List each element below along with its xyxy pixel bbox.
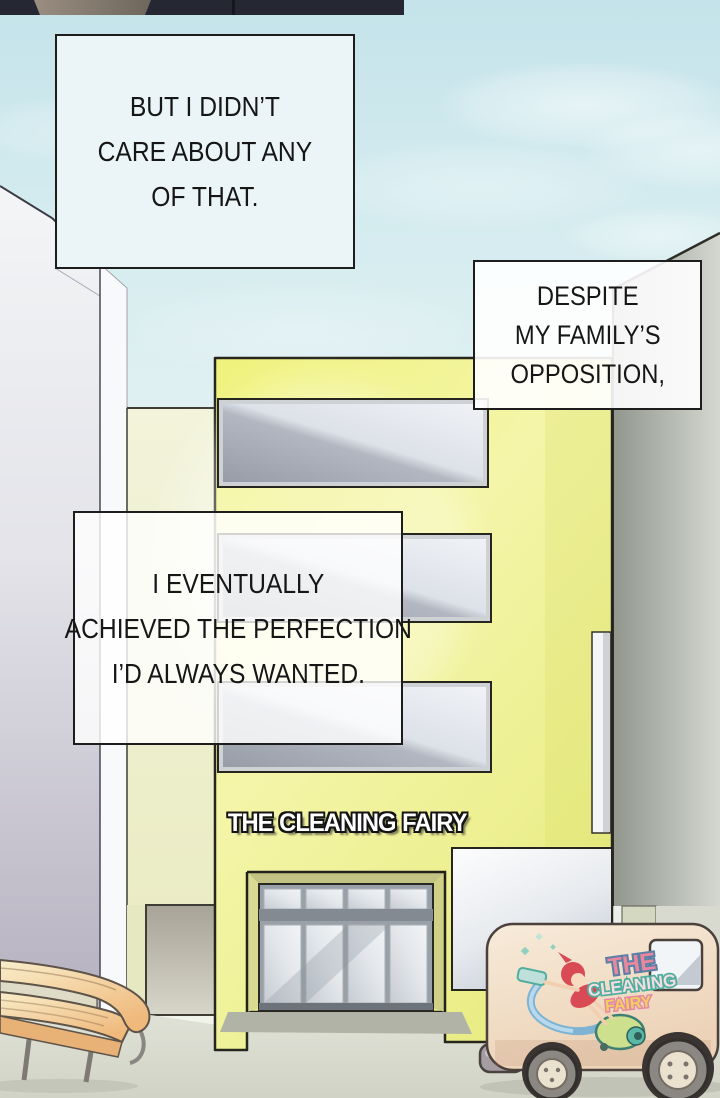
narration-text: BUT I DIDN’T CARE ABOUT ANY OF THAT.	[98, 84, 313, 219]
narration-box-3: I EVENTUALLY ACHIEVED THE PERFECTION I’D…	[73, 511, 403, 745]
narration-line: DESPITE	[510, 277, 664, 316]
building-sign: THE CLEANING FAIRY	[228, 809, 452, 838]
narration-text: I EVENTUALLY ACHIEVED THE PERFECTION I’D…	[64, 561, 411, 696]
passage-opening	[146, 905, 215, 1015]
entrance	[247, 872, 445, 1012]
narration-line: OF THAT.	[98, 174, 313, 219]
narration-line: OPPOSITION,	[510, 355, 664, 394]
narration-line: I’D ALWAYS WANTED.	[64, 651, 411, 696]
previous-panel-edge	[0, 0, 404, 15]
drainpipe	[592, 632, 610, 833]
fairy-face	[571, 973, 585, 987]
webtoon-panel: THE CLEANING FAIRY THE CLEANING FAIRY BU…	[0, 0, 720, 1098]
building-sign-text: THE CLEANING FAIRY	[228, 809, 467, 837]
narration-line: MY FAMILY’S	[510, 316, 664, 355]
narration-line: ACHIEVED THE PERFECTION	[64, 606, 411, 651]
narration-box-2: DESPITE MY FAMILY’S OPPOSITION,	[473, 260, 702, 410]
narration-line: BUT I DIDN’T	[98, 84, 313, 129]
entrance-shadow	[220, 1012, 472, 1034]
glass-door[interactable]	[390, 925, 427, 1003]
narration-line: I EVENTUALLY	[64, 561, 411, 606]
facade-window-1	[218, 399, 488, 487]
narration-line: CARE ABOUT ANY	[98, 129, 313, 174]
narration-text: DESPITE MY FAMILY’S OPPOSITION,	[510, 277, 664, 394]
narration-box-1: BUT I DIDN’T CARE ABOUT ANY OF THAT.	[55, 34, 355, 269]
